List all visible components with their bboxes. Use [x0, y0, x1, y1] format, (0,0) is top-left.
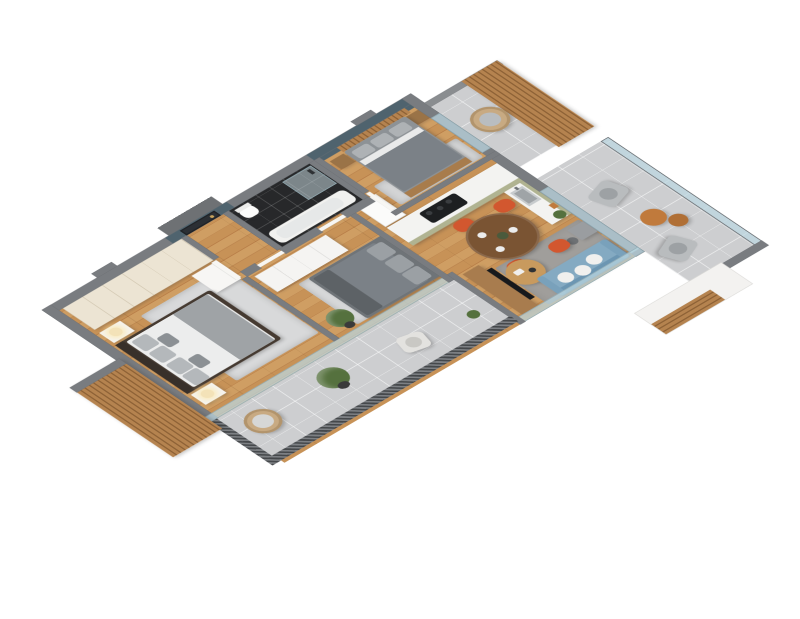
floor-plan-canvas	[0, 0, 800, 619]
isometric-scene	[6, 43, 794, 534]
